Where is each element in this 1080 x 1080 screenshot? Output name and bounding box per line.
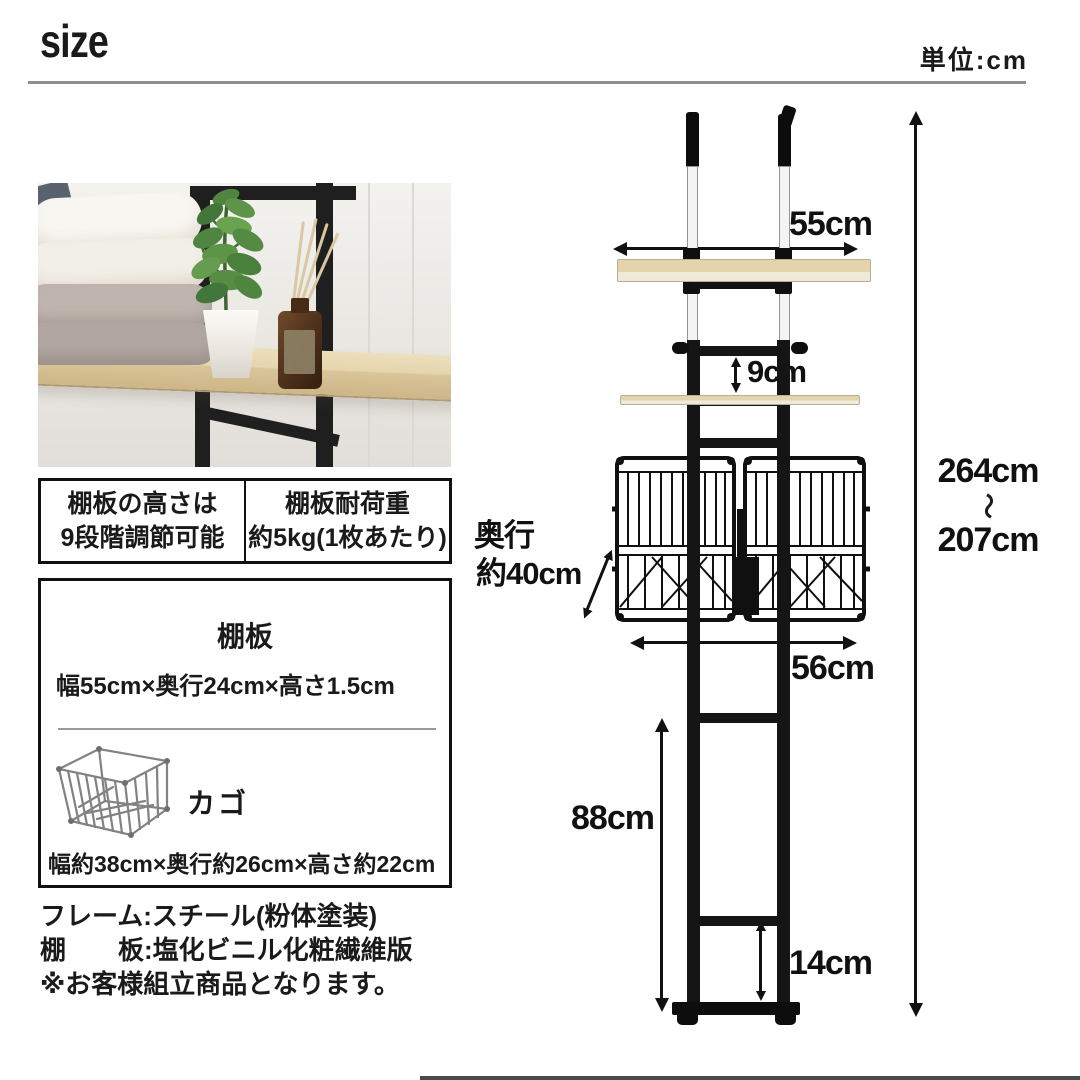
depth-arrow — [586, 557, 610, 610]
bottom-edge-bar — [420, 1076, 1080, 1080]
materials-note: フレーム:スチール(粉体塗装) 棚 板:塩化ビニル化粧繊維版 ※お客様組立商品と… — [40, 899, 413, 1001]
unit-label: 単位:cm — [920, 40, 1028, 77]
highlight-shelf-height: 棚板の高さは 9段階調節可能 — [41, 481, 244, 561]
wire-baskets-illustration — [612, 449, 870, 631]
page-title: size — [40, 14, 108, 68]
top-shelf-board — [617, 259, 871, 282]
frame-rung — [687, 346, 790, 356]
header-divider — [28, 81, 1026, 84]
wall-panel-line — [412, 183, 414, 467]
lower-height-label: 88cm — [571, 799, 654, 838]
highlight-text: 約5kg(1枚あたり) — [248, 521, 447, 555]
diffuser-bottle-label — [284, 330, 315, 374]
shelf-spec-size: 幅55cm×奥行24cm×高さ1.5cm — [56, 666, 395, 701]
highlight-box: 棚板の高さは 9段階調節可能 棚板耐荷重 約5kg(1枚あたり) — [38, 478, 452, 564]
basket-spec-title: カゴ — [187, 782, 249, 822]
middle-shelf-board — [620, 395, 860, 405]
frame-rung — [687, 438, 790, 448]
adjust-knob-right — [791, 342, 808, 354]
frame-rung — [687, 916, 790, 926]
product-photo — [38, 183, 451, 467]
material-board-line: 棚 板:塩化ビニル化粧繊維版 — [40, 933, 413, 967]
frame-rung — [687, 713, 790, 723]
spec-box: 棚板 幅55cm×奥行24cm×高さ1.5cm — [38, 578, 452, 888]
base-bar — [672, 1002, 800, 1015]
overall-height-max: 264cm — [936, 452, 1040, 491]
spec-divider — [58, 728, 436, 730]
highlight-text: 棚板耐荷重 — [285, 487, 410, 521]
top-width-arrow — [626, 247, 845, 250]
right-pole-cap-hook — [778, 104, 797, 127]
range-tilde: 〜 — [973, 493, 1003, 519]
basket-width-arrow — [643, 641, 844, 644]
wire-basket-icon — [53, 741, 173, 839]
depth-value-label: 約40cm — [476, 548, 581, 593]
overall-height-label: 264cm 〜 207cm — [936, 452, 1040, 560]
overall-height-min: 207cm — [936, 521, 1040, 560]
highlight-text: 棚板の高さは — [67, 487, 217, 521]
plant-icon — [156, 183, 306, 331]
lower-height-arrow — [660, 731, 663, 999]
material-frame-line: フレーム:スチール(粉体塗装) — [40, 899, 413, 933]
shelf-spec-title: 棚板 — [41, 615, 449, 655]
highlight-text: 9段階調節可能 — [61, 521, 225, 555]
base-foot-left — [677, 1014, 698, 1025]
basket-width-label: 56cm — [791, 649, 874, 688]
basket-spec-size: 幅約38cm×奥行約26cm×高さ約22cm — [48, 845, 435, 879]
top-width-label: 55cm — [789, 205, 872, 244]
overall-height-arrow — [914, 124, 917, 1004]
adjust-knob-left — [672, 342, 689, 354]
left-pole-cap — [686, 112, 699, 168]
shelf-bracket-bar — [692, 282, 788, 289]
bottom-rung-label: 14cm — [789, 944, 872, 983]
size-infographic: size 単位:cm — [0, 0, 1080, 1080]
highlight-load-capacity: 棚板耐荷重 約5kg(1枚あたり) — [244, 481, 449, 561]
assembly-note-line: ※お客様組立商品となります。 — [40, 967, 413, 1001]
shelf-pitch-arrow — [734, 366, 737, 384]
diffuser-bottle-neck — [291, 298, 309, 313]
wall-panel-line — [368, 183, 370, 467]
base-foot-right — [775, 1014, 796, 1025]
bottom-rung-arrow — [759, 930, 762, 992]
